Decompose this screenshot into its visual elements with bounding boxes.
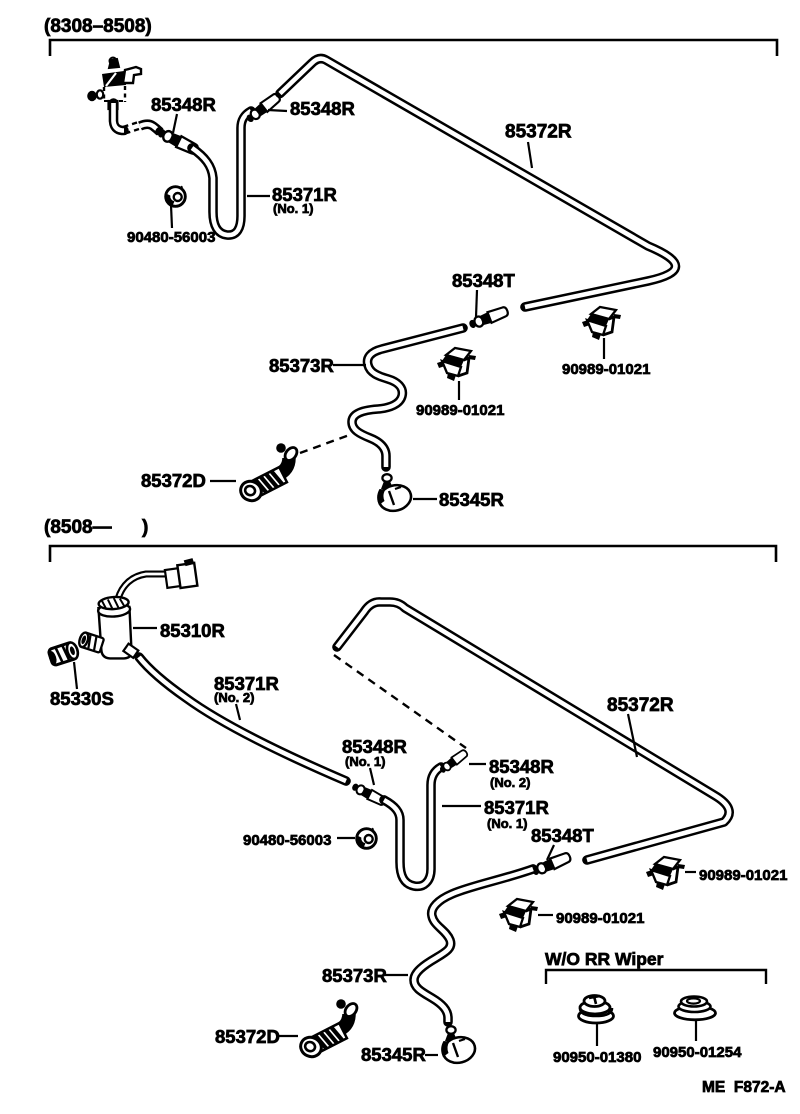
svg-text:85373R: 85373R bbox=[269, 355, 334, 376]
svg-text:85310R: 85310R bbox=[160, 620, 225, 641]
svg-text:90989-01021: 90989-01021 bbox=[562, 361, 650, 378]
svg-text:90950-01380: 90950-01380 bbox=[553, 1049, 641, 1066]
svg-text:W/O RR Wiper: W/O RR Wiper bbox=[545, 949, 664, 969]
svg-text:85372R: 85372R bbox=[505, 122, 572, 143]
svg-text:(No. 1): (No. 1) bbox=[487, 816, 527, 831]
svg-text:85372R: 85372R bbox=[607, 695, 674, 716]
svg-text:85345R: 85345R bbox=[439, 489, 504, 510]
svg-text:(No. 1): (No. 1) bbox=[345, 754, 385, 769]
svg-text:85348T: 85348T bbox=[452, 270, 515, 291]
svg-text:85330S: 85330S bbox=[50, 688, 114, 709]
svg-text:85373R: 85373R bbox=[322, 965, 387, 986]
svg-text:85371R: 85371R bbox=[484, 797, 549, 818]
svg-text:90480-56003: 90480-56003 bbox=[127, 229, 215, 246]
svg-text:(8308–8508): (8308–8508) bbox=[44, 16, 152, 37]
svg-text:(No. 2): (No. 2) bbox=[214, 690, 254, 705]
svg-text:ME F872-A: ME F872-A bbox=[702, 1079, 786, 1096]
svg-text:(8508—: (8508— bbox=[44, 517, 112, 538]
svg-text:90989-01021: 90989-01021 bbox=[416, 402, 504, 419]
svg-text:85348R: 85348R bbox=[489, 756, 554, 777]
svg-text:90989-01021: 90989-01021 bbox=[556, 910, 644, 927]
svg-text:85348R: 85348R bbox=[290, 98, 355, 119]
svg-text:90950-01254: 90950-01254 bbox=[653, 1044, 742, 1061]
svg-text:85348R: 85348R bbox=[151, 94, 216, 115]
svg-text:): ) bbox=[142, 517, 148, 538]
svg-text:90989-01021: 90989-01021 bbox=[699, 867, 787, 884]
svg-text:(No. 2): (No. 2) bbox=[490, 775, 530, 790]
svg-text:85372D: 85372D bbox=[215, 1026, 280, 1047]
svg-text:(No. 1): (No. 1) bbox=[273, 201, 313, 216]
svg-text:85372D: 85372D bbox=[141, 470, 206, 491]
svg-text:85345R: 85345R bbox=[361, 1044, 426, 1065]
svg-text:85348T: 85348T bbox=[531, 825, 594, 846]
svg-text:90480-56003: 90480-56003 bbox=[243, 832, 331, 849]
